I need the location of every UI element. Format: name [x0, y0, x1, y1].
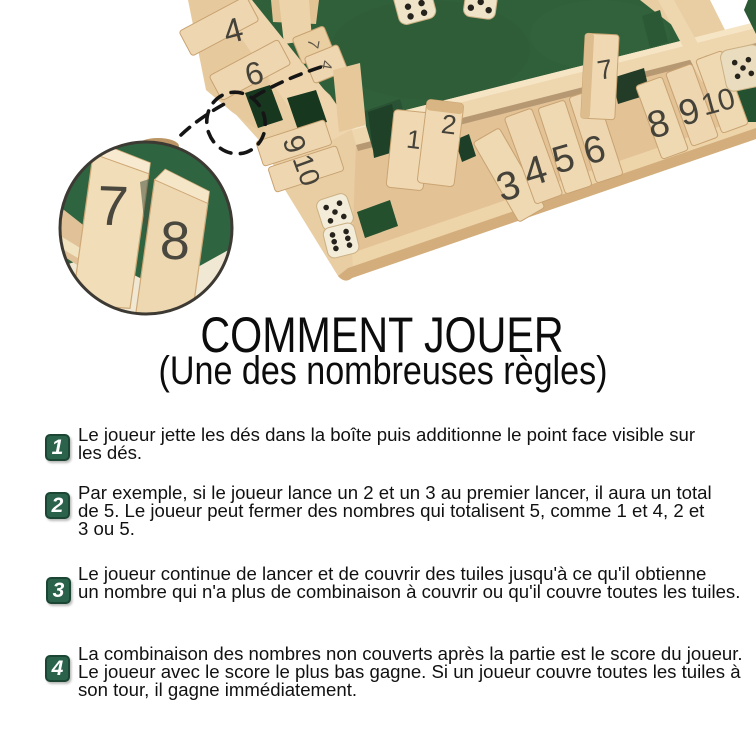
- svg-text:8: 8: [159, 211, 191, 272]
- svg-text:7: 7: [96, 174, 129, 238]
